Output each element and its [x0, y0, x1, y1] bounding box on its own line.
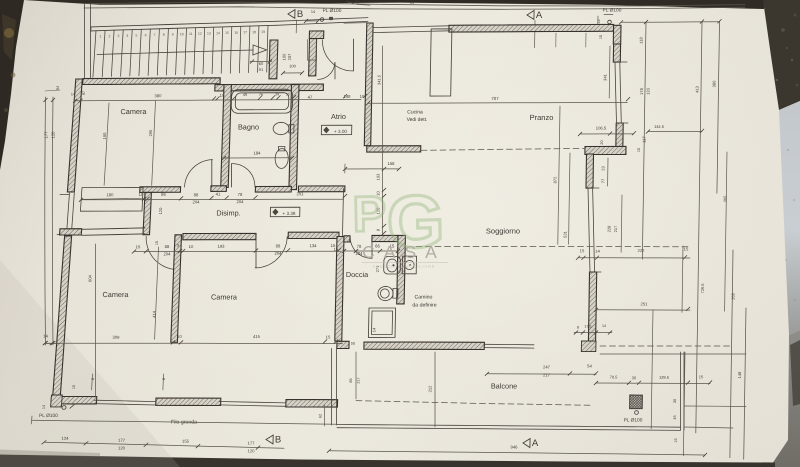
svg-text:9: 9 [172, 32, 174, 36]
svg-text:A: A [536, 10, 543, 21]
svg-text:45: 45 [673, 415, 677, 419]
svg-text:222: 222 [637, 248, 645, 253]
svg-text:91: 91 [259, 67, 264, 72]
svg-text:155: 155 [182, 439, 190, 444]
svg-text:AGENZIA IMMOBILIARE: AGENZIA IMMOBILIARE [372, 264, 435, 269]
svg-text:148: 148 [343, 94, 351, 99]
svg-text:15: 15 [637, 148, 641, 152]
svg-text:30: 30 [632, 375, 637, 380]
svg-text:PL Ø100: PL Ø100 [603, 7, 622, 13]
svg-text:14: 14 [43, 333, 48, 338]
svg-text:15: 15 [286, 92, 290, 96]
svg-text:217: 217 [613, 225, 618, 232]
svg-text:14: 14 [216, 31, 220, 35]
svg-text:341.5: 341.5 [376, 74, 381, 85]
svg-text:10: 10 [177, 334, 182, 339]
svg-text:17: 17 [243, 30, 247, 34]
svg-text:10: 10 [139, 192, 144, 197]
svg-text:10: 10 [360, 94, 365, 99]
svg-text:78: 78 [238, 192, 243, 197]
svg-text:18: 18 [252, 30, 256, 34]
svg-text:14: 14 [371, 327, 376, 332]
svg-text:4: 4 [127, 34, 129, 38]
svg-text:120: 120 [50, 131, 55, 139]
svg-text:91: 91 [410, 1, 414, 5]
svg-text:Doccia: Doccia [346, 270, 369, 279]
svg-text:41: 41 [216, 191, 221, 196]
svg-text:184: 184 [253, 150, 261, 155]
svg-text:120: 120 [645, 87, 650, 94]
svg-text:707: 707 [491, 96, 499, 101]
svg-text:946: 946 [510, 444, 518, 449]
svg-text:265: 265 [730, 292, 735, 299]
svg-text:Pranzo: Pranzo [530, 113, 554, 122]
svg-text:15: 15 [684, 246, 689, 251]
svg-text:Camera: Camera [211, 292, 238, 301]
svg-text:Disimp.: Disimp. [216, 208, 240, 217]
svg-text:CASA: CASA [362, 242, 446, 262]
svg-text:193: 193 [217, 244, 225, 249]
svg-text:Bagno: Bagno [238, 122, 259, 131]
svg-text:15: 15 [674, 438, 678, 442]
svg-text:190: 190 [102, 132, 107, 139]
svg-text:251: 251 [640, 301, 648, 306]
svg-text:30: 30 [673, 399, 677, 403]
svg-text:380: 380 [154, 93, 162, 98]
svg-text:129.5: 129.5 [659, 375, 670, 380]
svg-text:217: 217 [543, 372, 551, 377]
svg-text:Balcone: Balcone [491, 381, 517, 390]
svg-text:PL Ø100: PL Ø100 [39, 413, 58, 419]
svg-text:A: A [532, 438, 539, 449]
svg-text:10: 10 [180, 32, 184, 36]
svg-text:180: 180 [106, 192, 114, 197]
svg-text:88: 88 [276, 243, 281, 248]
svg-text:158: 158 [387, 161, 395, 166]
svg-text:148: 148 [737, 371, 742, 378]
svg-text:100: 100 [281, 53, 286, 60]
svg-text:Soggiorno: Soggiorno [486, 226, 520, 235]
svg-text:91: 91 [355, 0, 359, 4]
svg-text:49: 49 [243, 93, 247, 97]
svg-text:415: 415 [253, 334, 261, 339]
svg-text:15: 15 [225, 31, 229, 35]
svg-text:6: 6 [145, 33, 147, 37]
svg-text:76: 76 [259, 93, 263, 97]
svg-text:B: B [275, 434, 281, 445]
svg-text:39: 39 [275, 92, 279, 96]
svg-text:86: 86 [161, 192, 166, 197]
svg-text:177: 177 [118, 438, 126, 443]
svg-text:341: 341 [602, 73, 607, 80]
svg-text:144.5: 144.5 [654, 124, 665, 129]
svg-text:14: 14 [602, 324, 606, 328]
svg-text:15: 15 [155, 241, 159, 245]
svg-text:11: 11 [189, 32, 193, 36]
svg-text:8: 8 [163, 33, 165, 37]
svg-text:134: 134 [309, 243, 317, 248]
svg-text:103: 103 [375, 173, 380, 180]
svg-text:120: 120 [158, 207, 163, 214]
svg-text:16: 16 [234, 31, 238, 35]
svg-text:88: 88 [165, 244, 170, 249]
svg-text:1: 1 [99, 34, 101, 38]
svg-text:85: 85 [349, 378, 353, 382]
svg-text:+ 3.38: + 3.38 [283, 211, 296, 216]
svg-text:531: 531 [562, 230, 567, 237]
svg-text:177: 177 [247, 441, 255, 446]
svg-text:Camera: Camera [120, 107, 147, 116]
svg-text:da definire: da definire [412, 302, 436, 308]
svg-text:8: 8 [91, 378, 95, 380]
svg-text:3: 3 [117, 34, 119, 38]
svg-text:Atrio: Atrio [331, 112, 346, 121]
svg-text:P: P [352, 186, 387, 243]
svg-text:50: 50 [351, 342, 355, 346]
svg-text:380: 380 [711, 80, 716, 87]
svg-text:120: 120 [247, 448, 255, 453]
svg-text:120: 120 [118, 445, 126, 450]
svg-text:251: 251 [296, 191, 304, 196]
svg-text:62: 62 [318, 414, 322, 418]
svg-text:15: 15 [580, 248, 585, 253]
svg-text:106.5: 106.5 [596, 125, 607, 130]
svg-text:204: 204 [236, 199, 244, 204]
svg-text:14: 14 [311, 10, 315, 14]
svg-text:178: 178 [639, 87, 644, 94]
svg-text:B: B [297, 9, 303, 20]
svg-text:413: 413 [694, 85, 699, 92]
svg-text:17,5: 17,5 [584, 325, 591, 329]
svg-text:7: 7 [154, 33, 156, 37]
svg-text:PL Ø100: PL Ø100 [624, 417, 643, 423]
svg-text:729.5: 729.5 [700, 283, 705, 294]
svg-text:15: 15 [326, 334, 331, 339]
svg-text:94: 94 [56, 86, 60, 90]
svg-text:217: 217 [356, 377, 360, 383]
svg-text:118: 118 [638, 37, 643, 44]
svg-text:365: 365 [722, 195, 727, 202]
svg-text:204: 204 [192, 199, 200, 204]
svg-text:604: 604 [87, 274, 92, 282]
svg-text:204: 204 [163, 251, 171, 256]
svg-text:13: 13 [207, 31, 211, 35]
svg-text:15: 15 [599, 35, 603, 39]
svg-text:100: 100 [289, 63, 296, 68]
svg-text:10: 10 [189, 244, 194, 249]
svg-text:12: 12 [198, 32, 202, 36]
svg-text:15: 15 [136, 244, 141, 249]
svg-text:88: 88 [194, 192, 199, 197]
svg-text:177: 177 [43, 131, 48, 139]
svg-text:5: 5 [136, 33, 138, 37]
svg-text:77: 77 [600, 178, 605, 183]
svg-text:8: 8 [162, 378, 166, 380]
svg-text:9: 9 [177, 243, 179, 247]
svg-text:97: 97 [82, 91, 86, 95]
svg-text:872: 872 [552, 176, 557, 183]
svg-text:228: 228 [606, 225, 611, 232]
svg-text:15: 15 [334, 247, 339, 252]
svg-text:117: 117 [641, 136, 646, 143]
svg-text:204: 204 [274, 251, 282, 256]
svg-text:19: 19 [261, 30, 265, 34]
svg-text:20: 20 [600, 140, 604, 144]
svg-text:54: 54 [587, 363, 592, 368]
svg-text:295: 295 [148, 129, 153, 136]
svg-text:10: 10 [220, 93, 225, 98]
svg-text:212: 212 [427, 385, 432, 392]
svg-text:207: 207 [287, 53, 292, 60]
svg-text:14: 14 [42, 405, 46, 409]
svg-text:124: 124 [61, 436, 69, 441]
svg-text:8: 8 [577, 325, 579, 329]
svg-text:Camera: Camera [103, 290, 130, 299]
svg-text:PL Ø100: PL Ø100 [323, 8, 342, 14]
svg-text:14: 14 [595, 249, 600, 254]
svg-text:70.5: 70.5 [610, 374, 619, 379]
svg-text:+ 3.00: + 3.00 [334, 129, 347, 134]
svg-text:Camino: Camino [415, 294, 433, 300]
svg-text:23: 23 [600, 166, 605, 171]
svg-text:Cucina: Cucina [407, 109, 423, 115]
svg-text:15: 15 [72, 385, 76, 389]
svg-text:247: 247 [543, 364, 551, 369]
svg-text:2: 2 [108, 34, 110, 38]
svg-text:Vedi dett.: Vedi dett. [407, 117, 428, 123]
svg-text:309: 309 [112, 335, 120, 340]
svg-text:15: 15 [699, 374, 704, 379]
